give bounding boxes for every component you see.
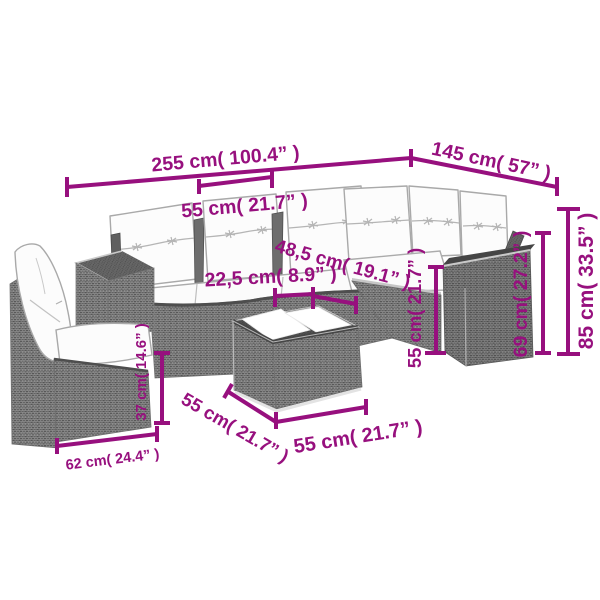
- svg-text:85 cm( 33.5” ): 85 cm( 33.5” ): [575, 213, 598, 350]
- svg-text:69 cm( 27.2” ): 69 cm( 27.2” ): [510, 231, 532, 358]
- svg-text:55 cm( 21.7” ): 55 cm( 21.7” ): [404, 248, 425, 368]
- svg-text:37 cm( 14.6” ): 37 cm( 14.6” ): [133, 323, 150, 421]
